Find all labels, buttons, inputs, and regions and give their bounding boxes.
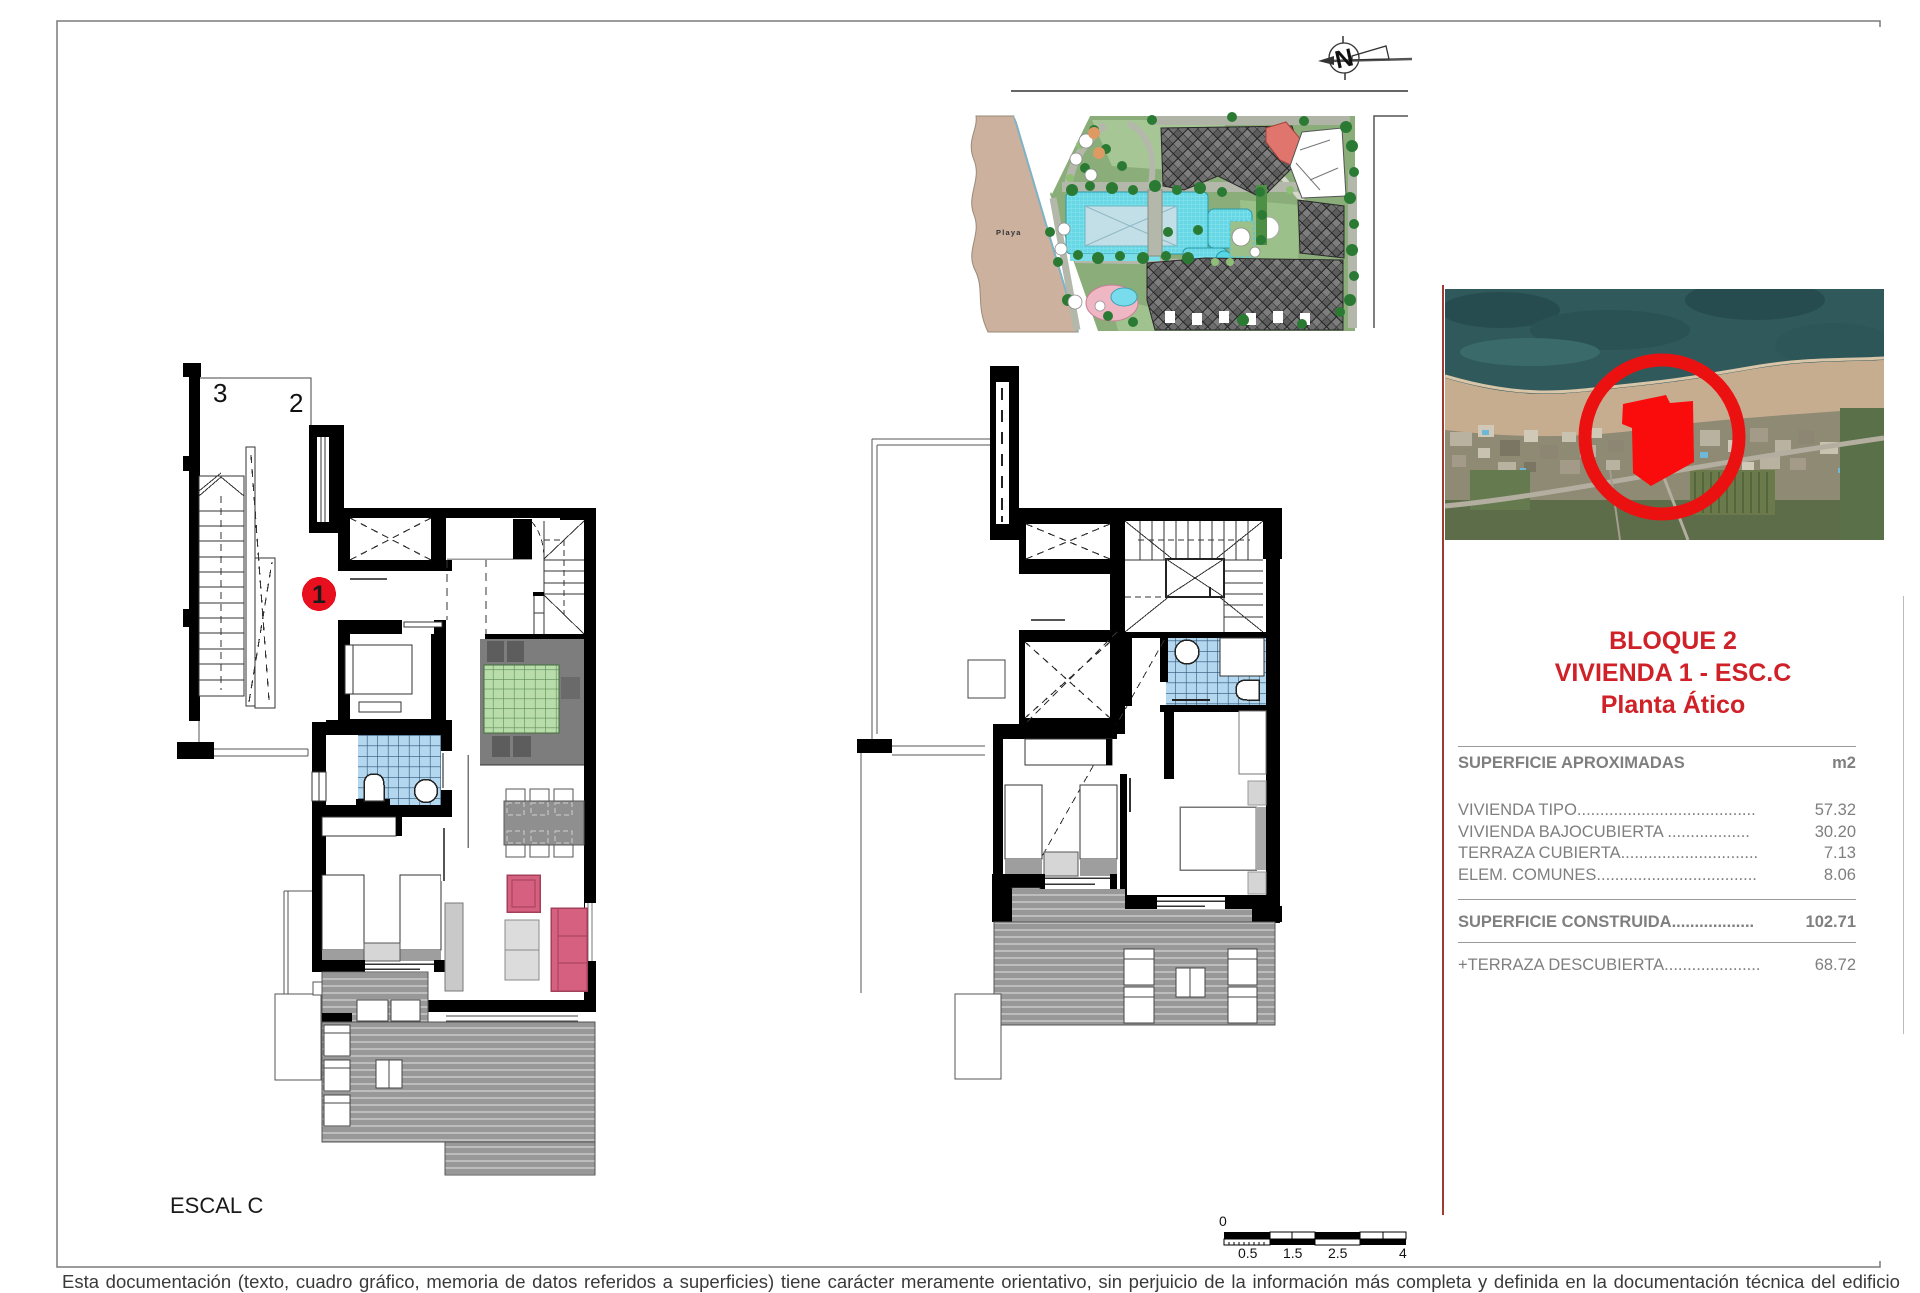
- svg-text:N: N: [1332, 43, 1355, 74]
- svg-text:4: 4: [1399, 1245, 1407, 1261]
- svg-text:3: 3: [213, 378, 227, 408]
- svg-text:2.5: 2.5: [1328, 1245, 1348, 1261]
- svg-text:1.5: 1.5: [1283, 1245, 1303, 1261]
- svg-text:0.5: 0.5: [1238, 1245, 1258, 1261]
- svg-text:2: 2: [289, 388, 303, 418]
- svg-text:Playa: Playa: [996, 228, 1022, 237]
- svg-text:0: 0: [1219, 1213, 1227, 1229]
- svg-text:1: 1: [312, 581, 326, 609]
